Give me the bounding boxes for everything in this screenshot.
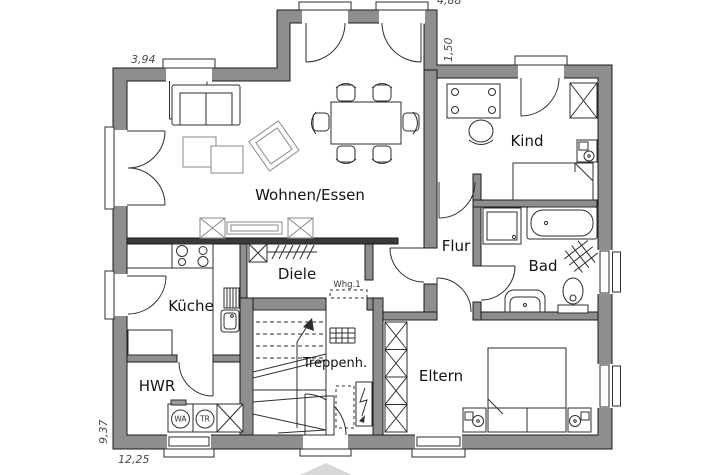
wall-flur-bad-lower	[473, 302, 481, 320]
bathtub	[527, 207, 597, 239]
room-label-bad: Bad	[528, 257, 557, 275]
door-whg1-leaf	[330, 290, 367, 298]
side-table	[249, 121, 299, 171]
kitchen-counter-block	[128, 330, 172, 355]
wall-kueche-hwr-west	[127, 355, 177, 362]
towel-radiator	[561, 236, 602, 277]
electrical-panel	[356, 382, 372, 426]
window-eltern-bottom	[412, 434, 465, 457]
floorplan-page: Wohnen/Essen Kind Flur Bad Küche Diele H…	[0, 0, 715, 475]
kitchen-sink	[221, 288, 239, 332]
floorplan-drawing: Wohnen/Essen Kind Flur Bad Küche Diele H…	[0, 0, 715, 475]
wall-kind-bad	[473, 200, 597, 207]
dim-left-height: 9,37	[97, 420, 110, 445]
sink-bad	[505, 290, 545, 312]
window-eltern-right	[597, 364, 620, 408]
wall-kueche-hwr-east	[213, 355, 240, 362]
nightstand-kind	[577, 140, 597, 162]
shower	[483, 208, 521, 244]
window-kind-top	[515, 56, 567, 116]
wall-wohnen-diele	[127, 238, 398, 244]
door-flur-kind	[439, 182, 475, 218]
toilet	[558, 278, 588, 313]
entrance-porch-dashed	[336, 386, 354, 428]
wall-wohnen-kind	[424, 70, 437, 248]
cabinet-hwr	[217, 404, 243, 432]
floor-mat	[330, 328, 355, 343]
wardrobe-kind	[570, 83, 597, 118]
window-hwr-bottom	[164, 434, 214, 457]
door-flur-passage	[390, 248, 424, 282]
dim-top-right: 4,88	[437, 0, 462, 7]
door-kueche-hwr	[179, 362, 213, 396]
unit-label: Whg.1	[333, 280, 360, 290]
coat-rack	[267, 245, 317, 259]
wall-treppenhaus-top-east	[367, 298, 373, 310]
wall-diele-passage	[365, 244, 373, 280]
stove	[172, 244, 213, 268]
door-terrace-left	[105, 127, 165, 209]
cabinet-diele	[249, 244, 267, 262]
room-label-diele: Diele	[278, 265, 316, 283]
double-bed	[488, 348, 566, 432]
furniture-eltern	[385, 322, 591, 432]
dim-bottom-width: 12,25	[118, 453, 150, 466]
door-bay-left	[299, 2, 351, 62]
nightstand-left	[463, 408, 486, 432]
stair-walk-line	[297, 325, 308, 428]
room-label-wohnen: Wohnen/Essen	[255, 186, 365, 204]
coffee-tables	[183, 137, 243, 173]
sofa	[172, 85, 240, 125]
room-label-hwr: HWR	[139, 377, 176, 395]
door-bay-right	[376, 2, 428, 62]
desk	[447, 84, 500, 118]
room-label-eltern: Eltern	[419, 367, 463, 385]
nightstand-right	[568, 408, 591, 432]
dryer-label: TR	[199, 415, 210, 424]
wall-flur-eltern	[383, 312, 437, 320]
desk-chair	[469, 120, 493, 145]
room-label-kind: Kind	[510, 132, 543, 150]
stair-arrow	[303, 318, 314, 331]
dim-bay-depth: 1,50	[442, 38, 455, 63]
furniture-wohnen	[172, 84, 419, 239]
sideboard	[200, 218, 313, 238]
entrance-canopy	[291, 463, 361, 475]
wardrobe-eltern	[385, 322, 407, 432]
stair-spindle	[326, 396, 334, 435]
washer-label: WA	[174, 415, 187, 424]
dim-top-left: 3,94	[131, 53, 156, 66]
stairs	[253, 310, 334, 435]
room-label-kueche: Küche	[168, 297, 214, 315]
wall-kueche-diele	[240, 244, 247, 298]
door-flur-eltern	[437, 278, 471, 312]
window-bad-right	[597, 250, 620, 294]
door-kueche-left	[105, 271, 166, 319]
wall-treppenhaus-eltern	[373, 298, 383, 435]
furniture-diele	[249, 244, 317, 262]
room-label-flur: Flur	[442, 237, 471, 255]
bed-kind	[513, 163, 593, 200]
room-label-treppenhaus: Treppenh.	[302, 356, 367, 371]
dining-table	[331, 102, 401, 144]
